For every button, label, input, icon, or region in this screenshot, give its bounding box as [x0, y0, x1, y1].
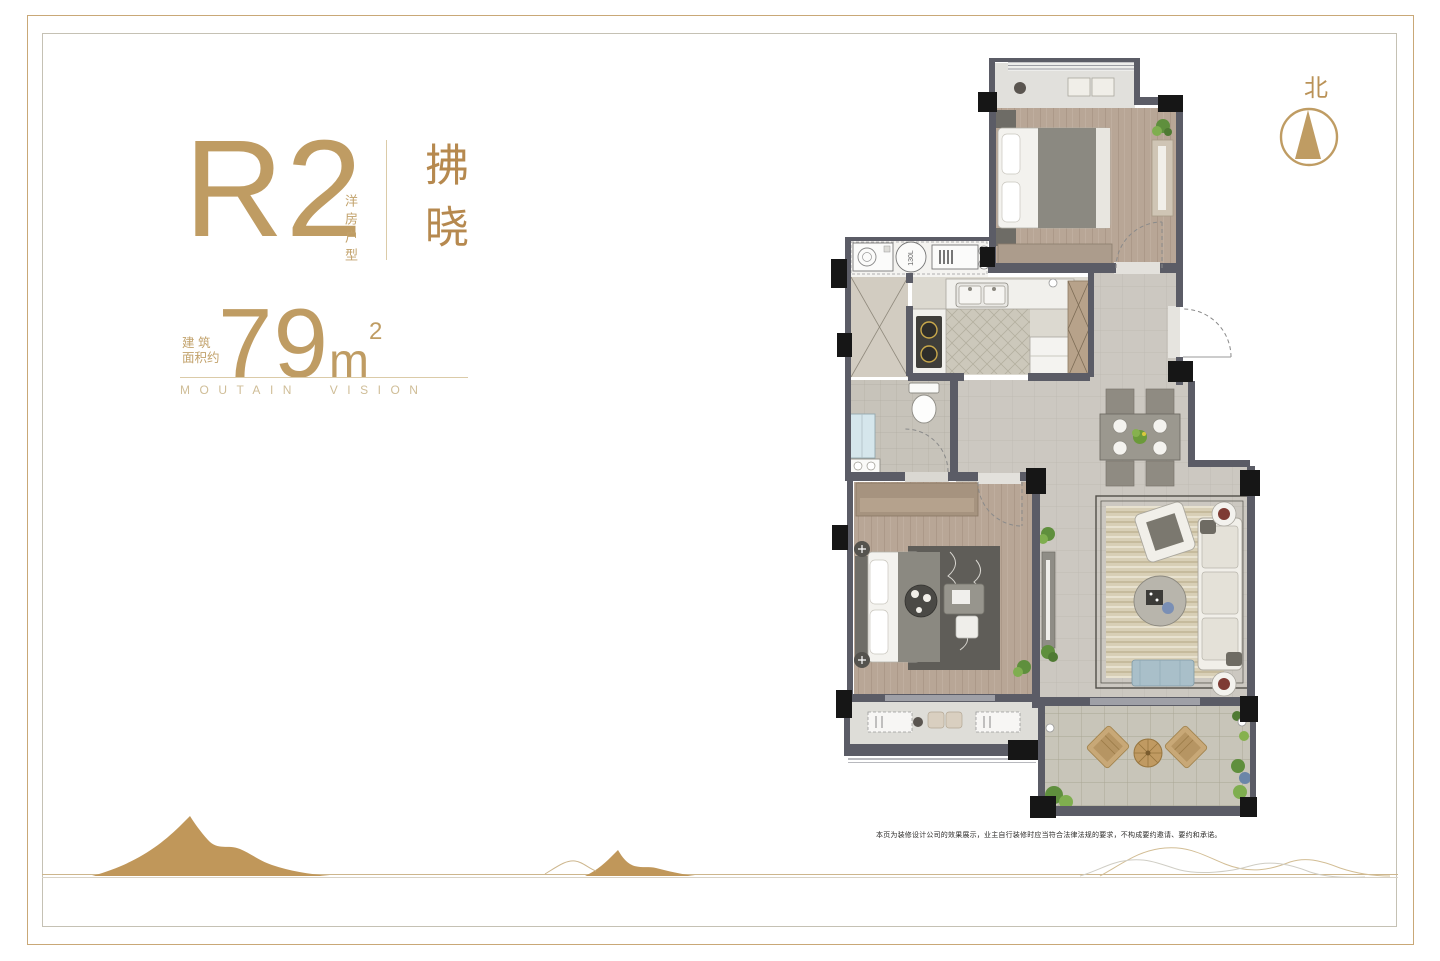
area-sup: 2	[369, 318, 382, 345]
shower	[850, 414, 875, 458]
headboard	[855, 556, 868, 658]
unit-name: 拂晓	[410, 142, 474, 266]
utility-appliances: 130L	[851, 242, 989, 274]
area-value: 79	[218, 288, 329, 398]
unit-type-label: 洋房户型	[341, 194, 360, 266]
radiator	[932, 245, 978, 269]
tank-capacity-label: 130L	[908, 250, 915, 266]
floor-plan: 130L	[820, 40, 1290, 850]
mountain-large	[92, 816, 330, 876]
slogan: MOUTAIN VISION	[180, 383, 427, 397]
area-prefix-label: 建 筑 面积约	[182, 336, 220, 366]
foyer-floor	[1088, 270, 1180, 382]
vertical-divider	[386, 140, 387, 260]
toilet	[912, 395, 936, 423]
disclaimer-text: 本页为装修设计公司的效果展示，业主自行装修时应当符合法律法规的要求，不构成要约邀…	[876, 830, 1222, 840]
mountain-decoration	[42, 798, 1398, 926]
tall-cabinet	[1068, 281, 1089, 377]
entry-threshold	[1168, 306, 1180, 358]
mountain-small	[585, 850, 695, 876]
kitchen-mat	[946, 308, 1030, 374]
bench	[998, 244, 1112, 266]
unit-code: R2	[184, 120, 364, 258]
gold-rule	[180, 377, 468, 378]
bench-blue	[1132, 660, 1194, 686]
compass-north-label: 北	[1296, 68, 1336, 103]
wave-line-gold	[1100, 848, 1390, 876]
ceiling-light	[1049, 279, 1057, 287]
area-unit: m	[329, 335, 369, 388]
